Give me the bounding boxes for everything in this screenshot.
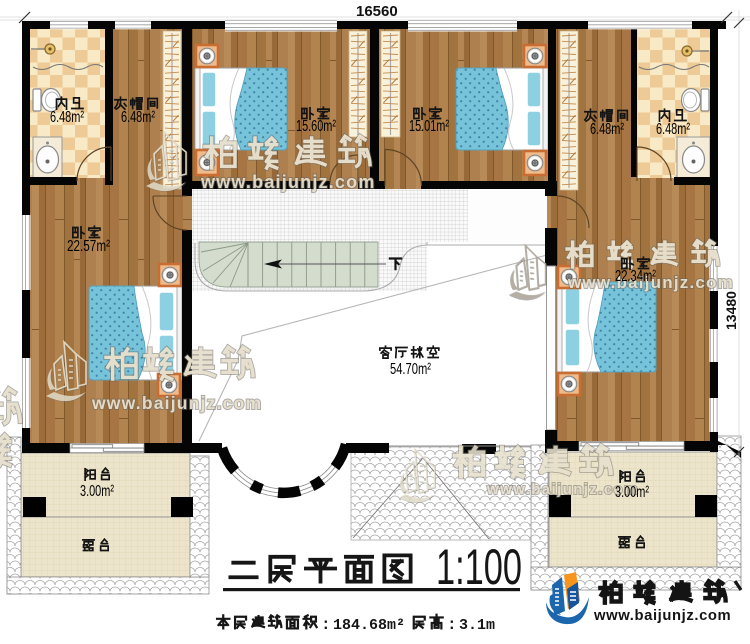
svg-text:3.00m²: 3.00m²	[615, 484, 649, 501]
svg-text:16560: 16560	[356, 3, 398, 20]
svg-text:6.48m²: 6.48m²	[656, 121, 690, 138]
svg-text:www.baijunjz.com: www.baijunjz.com	[91, 393, 262, 413]
svg-text:15.01m²: 15.01m²	[409, 118, 449, 135]
svg-text:184.68m²: 184.68m²	[333, 617, 405, 634]
svg-text:www.baijunjz.com: www.baijunjz.com	[200, 172, 376, 192]
svg-text:6.48m²: 6.48m²	[121, 109, 155, 126]
svg-text:15.60m²: 15.60m²	[296, 118, 336, 135]
svg-text:22.57m²: 22.57m²	[67, 238, 110, 255]
svg-text:54.70m²: 54.70m²	[390, 361, 431, 378]
svg-text:6.48m²: 6.48m²	[590, 121, 624, 138]
svg-text:1:100: 1:100	[436, 539, 522, 595]
svg-text:www.baijunjz.com: www.baijunjz.com	[593, 608, 731, 624]
svg-text:3.1m: 3.1m	[459, 617, 495, 634]
svg-text::: :	[447, 616, 457, 634]
svg-text:6.48m²: 6.48m²	[50, 109, 84, 126]
svg-text:13480: 13480	[723, 291, 739, 330]
svg-text::: :	[321, 616, 331, 634]
svg-text:3.00m²: 3.00m²	[80, 483, 114, 500]
svg-text:22.34m²: 22.34m²	[615, 268, 656, 285]
